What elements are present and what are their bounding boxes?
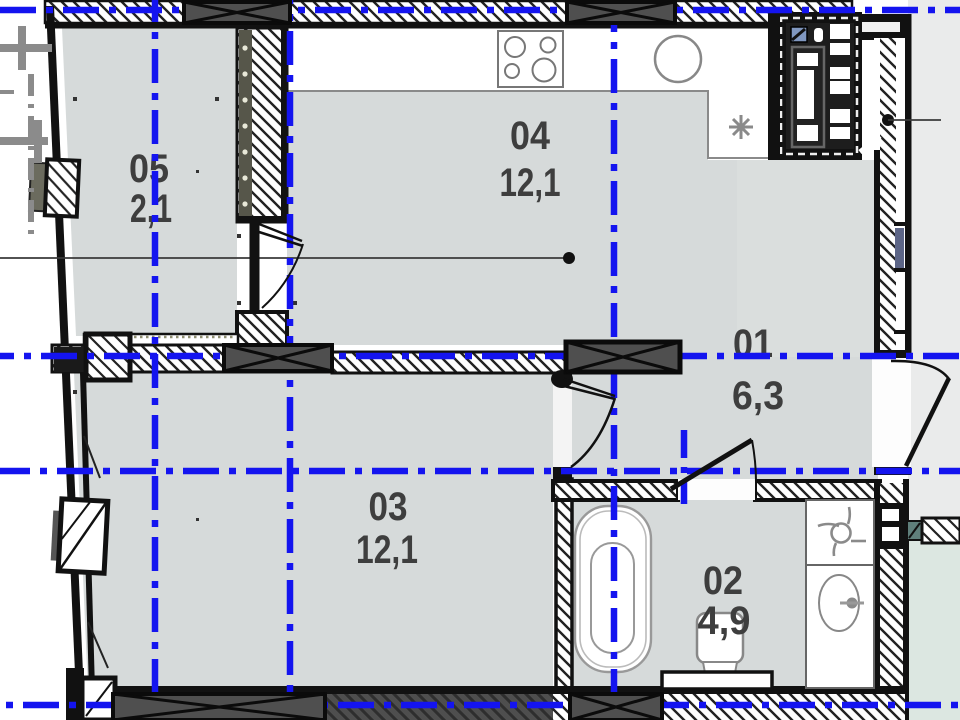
svg-text:2,1: 2,1 [130,187,172,231]
svg-text:4,9: 4,9 [698,599,751,643]
svg-text:04: 04 [510,114,551,158]
svg-text:03: 03 [369,485,408,529]
svg-text:01: 01 [733,322,773,366]
svg-text:12,1: 12,1 [500,161,561,205]
svg-text:02: 02 [703,559,743,603]
svg-text:6,3: 6,3 [732,374,784,418]
svg-text:12,1: 12,1 [356,528,418,572]
svg-text:05: 05 [129,147,169,191]
